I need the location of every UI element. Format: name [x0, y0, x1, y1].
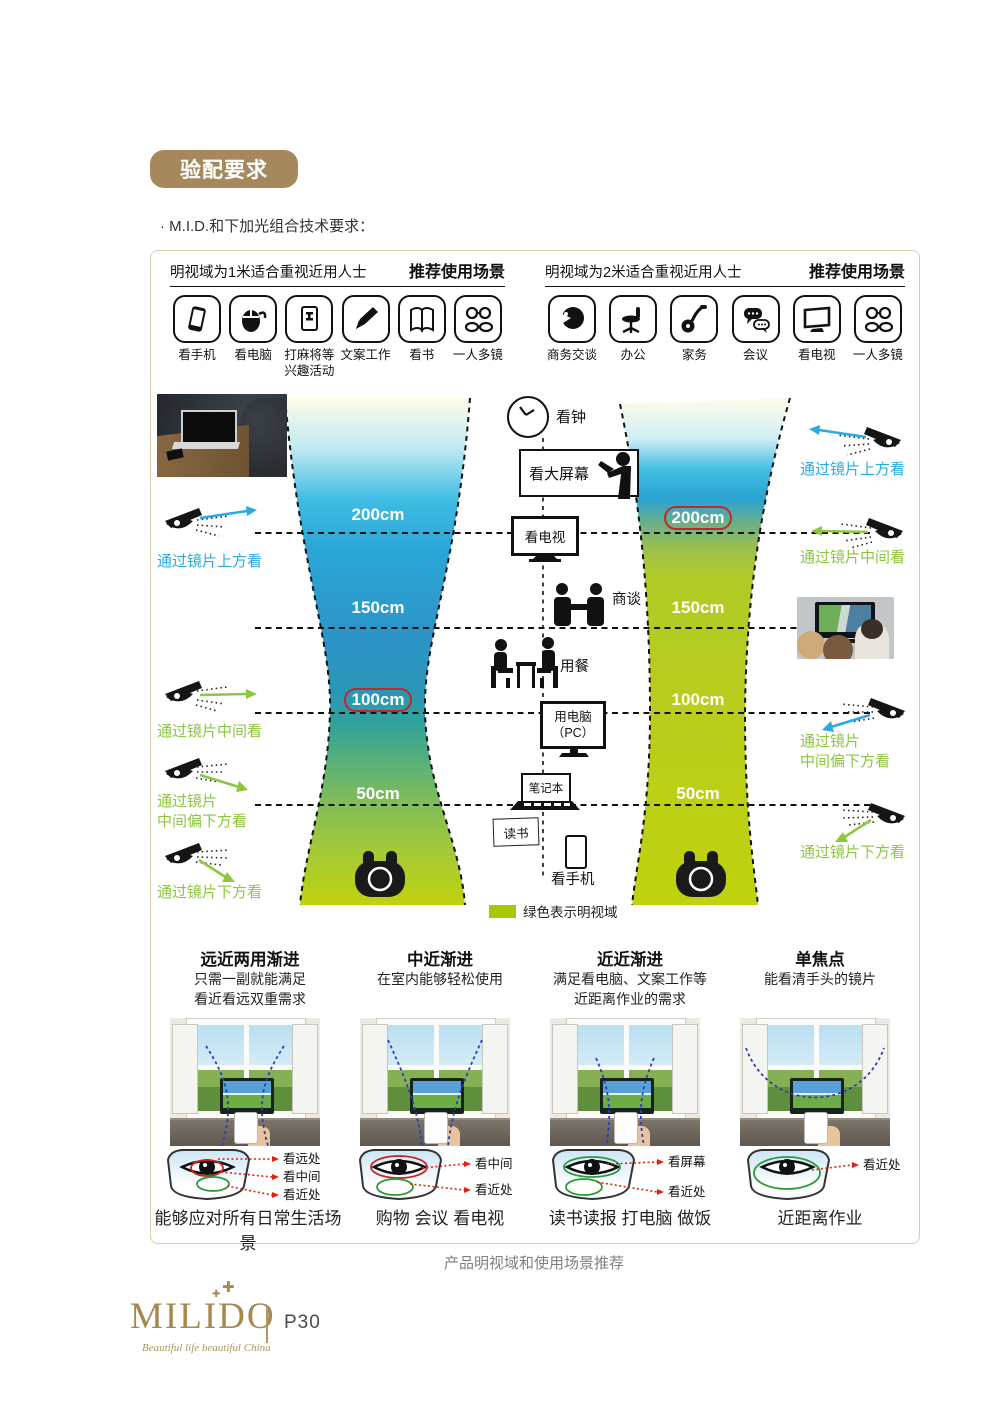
brochure-page: 验配要求 · M.I.D.和下加光组合技术要求： 明视域为1米适合重视近用人士 …: [0, 0, 1000, 1402]
activity-label-dining: 用餐: [560, 655, 589, 676]
activity-label-clock: 看钟: [556, 406, 586, 427]
icon-label: 文案工作: [341, 348, 391, 364]
scenario-1m-header: 明视域为1米适合重视近用人士 推荐使用场景: [170, 258, 505, 287]
view-label-bottom: 通过镜片下方看: [157, 883, 262, 903]
svg-text:看近处: 看近处: [475, 1183, 513, 1197]
icon-label: 办公: [621, 348, 646, 364]
presenter-silhouette: [597, 447, 641, 505]
chat-bubbles-icon: [732, 295, 780, 343]
page-number: P30: [284, 1312, 321, 1334]
icon-label: 家务: [682, 348, 707, 364]
mouse-icon: [229, 295, 277, 343]
lens-type-desc: 能看清手头的镜片: [725, 970, 915, 990]
clover-icon: ✚: [222, 1278, 235, 1296]
lens-type-desc: 只需一副就能满足 看近看远双重需求: [155, 970, 345, 1009]
scenario-2m-header: 明视域为2米适合重视近用人士 推荐使用场景: [545, 258, 905, 287]
footer-divider: [266, 1305, 268, 1343]
lens-type-title: 单焦点: [725, 946, 915, 970]
figure-caption: 产品明视域和使用场景推荐: [150, 1252, 918, 1273]
handshake-people-icon: [552, 582, 606, 626]
lens-type-title: 中近渐进: [345, 946, 535, 970]
lens-type-title: 远近两用渐进: [155, 946, 345, 970]
svg-text:看近处: 看近处: [668, 1185, 706, 1199]
icon-label: 打麻将等 兴趣活动: [284, 348, 334, 379]
legend-label: 绿色表示明视域: [523, 901, 618, 921]
scale-150cm-left: 150cm: [336, 598, 420, 618]
activity-label-business-talk: 商谈: [612, 588, 641, 609]
profile-icon: [548, 295, 596, 343]
clover-icon: ✚: [212, 1289, 220, 1300]
legend: 绿色表示明视域: [489, 901, 618, 921]
scale-100cm-left-circled: 100cm: [336, 688, 420, 712]
scenario-title-bold: 推荐使用场景: [409, 258, 505, 282]
lens-type-caption: 购物 会议 看电视: [340, 1204, 540, 1229]
svg-text:看中间: 看中间: [475, 1156, 513, 1171]
tv-activity-icon: 看电视: [511, 516, 579, 556]
icon-label: 一人多镜: [453, 348, 503, 364]
desktop-stand: [556, 747, 592, 760]
pen-icon: [342, 295, 390, 343]
eye-look-down-icon: [812, 800, 907, 846]
desktop-pc-icon: 用电脑 （PC）: [540, 701, 606, 749]
icon-label: 看电视: [798, 348, 836, 364]
lens-type-caption: 近距离作业: [725, 1204, 915, 1229]
section-badge: 验配要求: [150, 150, 298, 188]
svg-text:看中间: 看中间: [283, 1169, 321, 1184]
view-label-top: 通过镜片上方看: [157, 552, 262, 572]
scale-150cm-right: 150cm: [656, 598, 740, 618]
view-label-top: 通过镜片上方看: [800, 460, 905, 480]
photo-family-tv: [797, 597, 894, 659]
lens-type-caption: 能够应对所有日常生活场景: [148, 1204, 348, 1254]
icon-label: 一人多镜: [853, 348, 903, 364]
eye-look-mid-icon: [163, 678, 258, 722]
scale-200cm-left: 200cm: [336, 505, 420, 525]
icon-label: 看电脑: [234, 348, 272, 364]
svg-text:看远处: 看远处: [283, 1152, 321, 1166]
tv-icon: [793, 295, 841, 343]
big-screen-presentation-icon: 看大屏幕: [519, 449, 639, 497]
scenario-1m: 明视域为1米适合重视近用人士 推荐使用场景 看手机 看电脑 打麻将等 兴趣活动 …: [170, 258, 505, 379]
svg-text:看屏幕: 看屏幕: [668, 1155, 706, 1169]
book-icon: [398, 295, 446, 343]
window-scene-photo: [360, 1018, 510, 1146]
eye-look-down-icon: [163, 840, 258, 886]
brand-logo: MILIDO: [130, 1295, 276, 1338]
mahjong-icon: [285, 295, 333, 343]
window-scene-photo: [170, 1018, 320, 1146]
view-label-mid: 通过镜片中间看: [157, 722, 262, 742]
multi-glasses-icon: [454, 295, 502, 343]
scale-50cm-right: 50cm: [656, 784, 740, 804]
view-label-mid: 通过镜片中间看: [800, 548, 905, 568]
scale-50cm-left: 50cm: [336, 784, 420, 804]
scenario-title-bold: 推荐使用场景: [809, 258, 905, 282]
reading-book-icon: 读书: [493, 817, 540, 847]
activity-label-phone: 看手机: [551, 868, 595, 889]
view-label-bottom: 通过镜片下方看: [800, 843, 905, 863]
view-label-mid-lower: 通过镜片 中间偏下方看: [800, 732, 890, 773]
lens-zone-diagram: 看远处 看中间 看近处: [160, 1146, 355, 1208]
eye-look-up-icon: [163, 505, 258, 549]
icon-label: 看书: [409, 348, 434, 364]
vacuum-icon: [670, 295, 718, 343]
dining-people-icon: [488, 632, 560, 690]
legend-swatch: [489, 905, 516, 918]
scenario-title: 明视域为2米适合重视近用人士: [545, 261, 742, 282]
laptop-icon: 笔记本: [521, 773, 571, 803]
window-scene-photo: [740, 1018, 890, 1146]
icon-label: 会议: [743, 348, 768, 364]
phone-icon: [173, 295, 221, 343]
multi-glasses-icon: [854, 295, 902, 343]
scenario-2m: 明视域为2米适合重视近用人士 推荐使用场景 商务交谈 办公 家务 会议 看电视 …: [545, 258, 905, 364]
office-chair-icon: [609, 295, 657, 343]
window-scene-photo: [550, 1018, 700, 1146]
clear-zone-overlay: [740, 1018, 890, 1146]
photo-laptop-user: [157, 394, 287, 477]
lens-type-title: 近近渐进: [535, 946, 725, 970]
clear-zone-overlay: [360, 1018, 510, 1146]
clock-icon: [507, 396, 549, 438]
lens-zone-diagram: 看屏幕 看近处: [545, 1146, 740, 1208]
scale-200cm-right-circled: 200cm: [656, 506, 740, 530]
clear-zone-overlay: [550, 1018, 700, 1146]
icon-label: 商务交谈: [547, 348, 597, 364]
tv-stand: [527, 553, 563, 565]
section-subtitle: · M.I.D.和下加光组合技术要求：: [160, 215, 374, 236]
lens-type-caption: 读书读报 打电脑 做饭: [530, 1204, 730, 1229]
smartphone-icon: [565, 835, 587, 869]
lens-type-desc: 在室内能够轻松使用: [345, 970, 535, 990]
svg-text:看近处: 看近处: [863, 1158, 901, 1172]
brand-tagline: Beautiful life beautiful China: [142, 1342, 271, 1354]
lens-type-desc: 满足看电脑、文案工作等 近距离作业的需求: [525, 970, 735, 1009]
lens-zone-diagram: 看近处: [740, 1146, 935, 1208]
scale-100cm-right: 100cm: [656, 690, 740, 710]
lens-zone-diagram: 看中间 看近处: [352, 1146, 547, 1208]
icon-label: 看手机: [178, 348, 216, 364]
scenario-title: 明视域为1米适合重视近用人士: [170, 261, 367, 282]
clear-zone-overlay: [170, 1018, 320, 1146]
view-label-mid-lower: 通过镜片 中间偏下方看: [157, 792, 247, 833]
laptop-base: [510, 801, 580, 813]
svg-text:看近处: 看近处: [283, 1188, 321, 1202]
